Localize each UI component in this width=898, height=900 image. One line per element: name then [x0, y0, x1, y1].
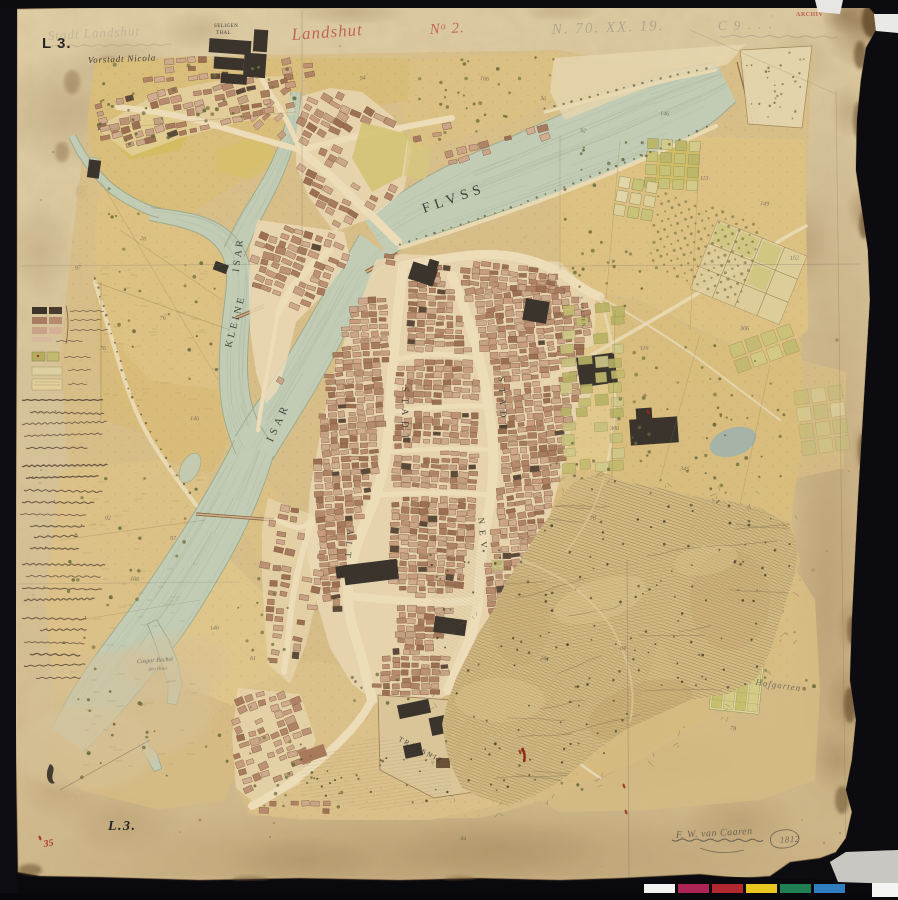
svg-text:291: 291: [540, 656, 550, 663]
svg-text:SELIGEN: SELIGEN: [214, 24, 238, 29]
svg-text:100: 100: [130, 576, 140, 583]
svg-text:146: 146: [190, 415, 199, 422]
svg-text:94: 94: [359, 74, 366, 82]
svg-text:306: 306: [739, 326, 749, 332]
svg-text:35: 35: [42, 838, 54, 850]
svg-text:152: 152: [790, 255, 799, 262]
svg-text:92: 92: [580, 128, 587, 135]
svg-text:THAL: THAL: [216, 31, 231, 36]
svg-text:92: 92: [105, 515, 112, 522]
svg-text:146: 146: [210, 625, 219, 632]
svg-text:345: 345: [679, 465, 690, 473]
svg-text:76: 76: [160, 315, 167, 322]
svg-text:84: 84: [620, 645, 626, 652]
svg-text:1812: 1812: [779, 834, 800, 845]
svg-text:113: 113: [700, 176, 709, 182]
svg-text:78: 78: [730, 726, 736, 732]
svg-text:STADT: STADT: [400, 387, 410, 445]
svg-text:116: 116: [640, 346, 649, 352]
svg-text:306: 306: [609, 426, 619, 432]
svg-text:36: 36: [539, 96, 546, 102]
svg-text:26: 26: [140, 236, 147, 243]
svg-text:44: 44: [460, 835, 467, 842]
svg-text:61: 61: [250, 656, 256, 662]
svg-text:C 9 . . .: C 9 . . .: [718, 16, 774, 33]
svg-text:78: 78: [590, 516, 596, 522]
svg-text:76: 76: [100, 346, 106, 352]
svg-text:No 2.: No 2.: [428, 20, 465, 38]
svg-text:146: 146: [660, 110, 669, 118]
svg-text:149: 149: [760, 200, 770, 208]
svg-text:106: 106: [480, 76, 489, 83]
svg-text:L.3.: L.3.: [107, 819, 137, 834]
svg-text:ARCHIV: ARCHIV: [796, 12, 824, 18]
